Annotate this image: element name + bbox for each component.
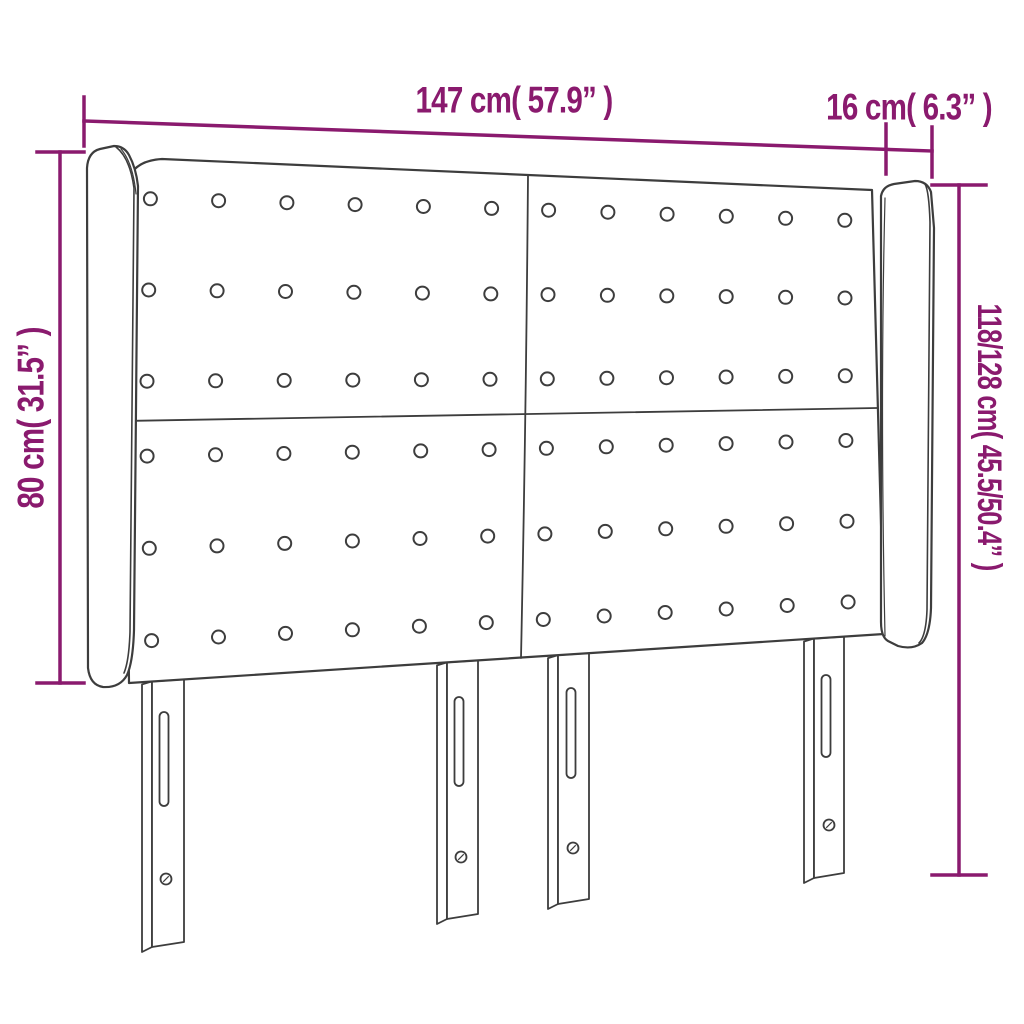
leg-adjustment-slot	[822, 675, 831, 757]
tufting-button	[413, 620, 426, 633]
tufting-button	[839, 369, 852, 382]
product-dimension-diagram: 147 cm( 57.9” ) 16 cm( 6.3” ) 80 cm( 31.…	[0, 0, 1024, 1024]
tufting-button	[279, 285, 292, 298]
tufting-button	[484, 373, 497, 386]
tufting-button	[277, 447, 290, 460]
tufting-button	[540, 442, 553, 455]
tufting-button	[143, 542, 156, 555]
tufting-button	[349, 198, 362, 211]
tufting-button	[278, 537, 291, 550]
tufting-button	[481, 530, 494, 543]
tufting-button	[538, 527, 551, 540]
tufting-button	[779, 370, 792, 383]
tufting-button	[141, 375, 154, 388]
tufting-button	[346, 535, 359, 548]
tufting-button	[145, 634, 158, 647]
tufting-button	[346, 623, 359, 636]
headboard-legs	[142, 637, 844, 952]
headboard-leg	[437, 660, 478, 924]
tufting-button	[416, 287, 429, 300]
tufting-button	[541, 372, 554, 385]
tufting-button	[347, 286, 360, 299]
tufting-button	[599, 525, 612, 538]
dimension-height-board-text: 80 cm( 31.5” )	[13, 327, 50, 508]
tufting-button	[141, 450, 154, 463]
tufting-button	[598, 610, 611, 623]
tufting-button	[542, 288, 555, 301]
tufting-button	[484, 287, 497, 300]
tufting-button	[781, 599, 794, 612]
tufting-button	[211, 284, 224, 297]
tufting-button	[660, 371, 673, 384]
tufting-button	[660, 439, 673, 452]
tufting-button	[212, 194, 225, 207]
tufting-button	[600, 440, 613, 453]
tufting-button	[142, 284, 155, 297]
tufting-button	[279, 627, 292, 640]
tufting-button	[779, 291, 792, 304]
tufting-button	[346, 374, 359, 387]
leg-side-face	[804, 639, 814, 883]
tufting-button	[842, 596, 855, 609]
leg-side-face	[142, 681, 152, 952]
tufting-button	[841, 515, 854, 528]
headboard-leg	[142, 679, 184, 952]
tufting-button	[720, 371, 733, 384]
tufting-button	[839, 292, 852, 305]
tufting-button	[780, 436, 793, 449]
headboard-front-panel	[124, 159, 884, 683]
tufting-button	[839, 434, 852, 447]
tufting-button	[415, 373, 428, 386]
tufting-button	[720, 520, 733, 533]
dim-width-line	[84, 121, 932, 151]
tufting-button	[209, 374, 222, 387]
headboard-line-art	[0, 0, 1024, 1024]
dimension-width-text: 147 cm( 57.9” )	[416, 82, 613, 119]
tufting-button	[720, 290, 733, 303]
leg-front-face	[814, 637, 844, 878]
tufting-button	[417, 200, 430, 213]
leg-adjustment-slot	[567, 688, 576, 778]
tufting-button	[211, 539, 224, 552]
tufting-button	[720, 210, 733, 223]
tufting-button	[600, 372, 613, 385]
tufting-button	[209, 448, 222, 461]
dimension-depth-text: 16 cm( 6.3” )	[826, 89, 992, 126]
tufting-button	[720, 603, 733, 616]
tufting-button	[280, 196, 293, 209]
dimension-height-total-text: 118/128 cm( 45.5/50.4” )	[972, 304, 1006, 571]
tufting-button	[780, 517, 793, 530]
leg-side-face	[548, 655, 558, 909]
tufting-button	[414, 444, 427, 457]
leg-adjustment-slot	[455, 697, 464, 786]
tufting-button	[483, 443, 496, 456]
tufting-button	[144, 192, 157, 205]
leg-adjustment-slot	[160, 712, 169, 806]
tufting-button	[601, 289, 614, 302]
tufting-button	[838, 214, 851, 227]
tufting-button	[346, 446, 359, 459]
headboard-leg	[548, 653, 589, 909]
headboard-panel-group	[87, 146, 934, 952]
tufting-button	[278, 374, 291, 387]
left-wing	[87, 146, 138, 687]
tufting-button	[661, 208, 674, 221]
tufting-button	[601, 206, 614, 219]
tufting-button	[659, 522, 672, 535]
tufting-button	[480, 616, 493, 629]
tufting-button	[537, 613, 550, 626]
tufting-button	[212, 631, 225, 644]
tufting-button	[779, 212, 792, 225]
right-wing	[881, 181, 934, 647]
headboard-leg	[804, 637, 844, 883]
tufting-button	[414, 532, 427, 545]
tufting-button	[720, 437, 733, 450]
leg-side-face	[437, 662, 447, 924]
tufting-button	[485, 202, 498, 215]
tufting-button	[542, 204, 555, 217]
tufting-button	[659, 606, 672, 619]
tufting-button	[660, 289, 673, 302]
